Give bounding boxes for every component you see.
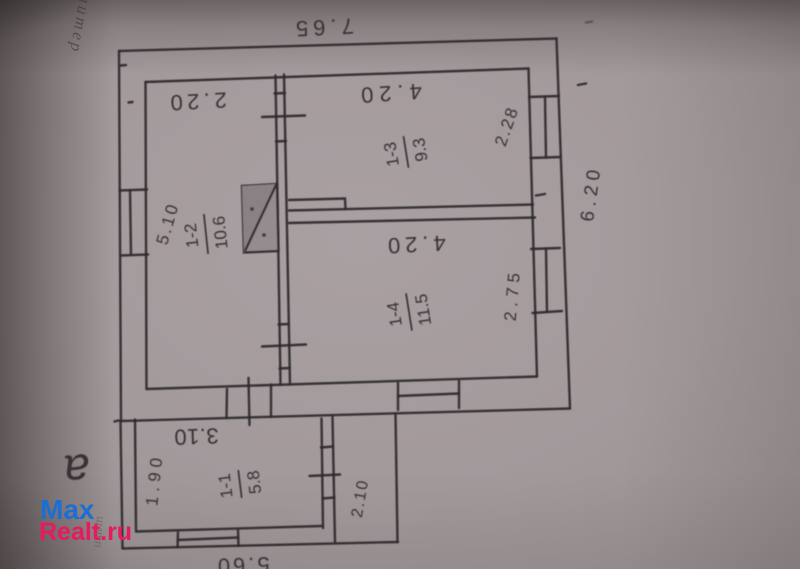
svg-text:10.6: 10.6 [209,215,231,250]
svg-text:3.10: 3.10 [173,423,219,450]
svg-text:Realt.ru: Realt.ru [39,518,132,546]
svg-text:5.60: 5.60 [214,552,270,569]
svg-text:4.20: 4.20 [382,230,446,258]
svg-text:4.20: 4.20 [354,79,422,109]
svg-text:5.8: 5.8 [244,469,266,495]
svg-text:2.20: 2.20 [165,87,227,115]
svg-text:7.65: 7.65 [290,13,354,41]
svg-text:1-3: 1-3 [380,141,403,168]
svg-text:1-4: 1-4 [383,301,406,328]
svg-text:9.3: 9.3 [409,137,431,163]
svg-text:1-2: 1-2 [181,222,202,248]
svg-text:1-1: 1-1 [215,472,237,499]
svg-text:а: а [63,444,92,498]
